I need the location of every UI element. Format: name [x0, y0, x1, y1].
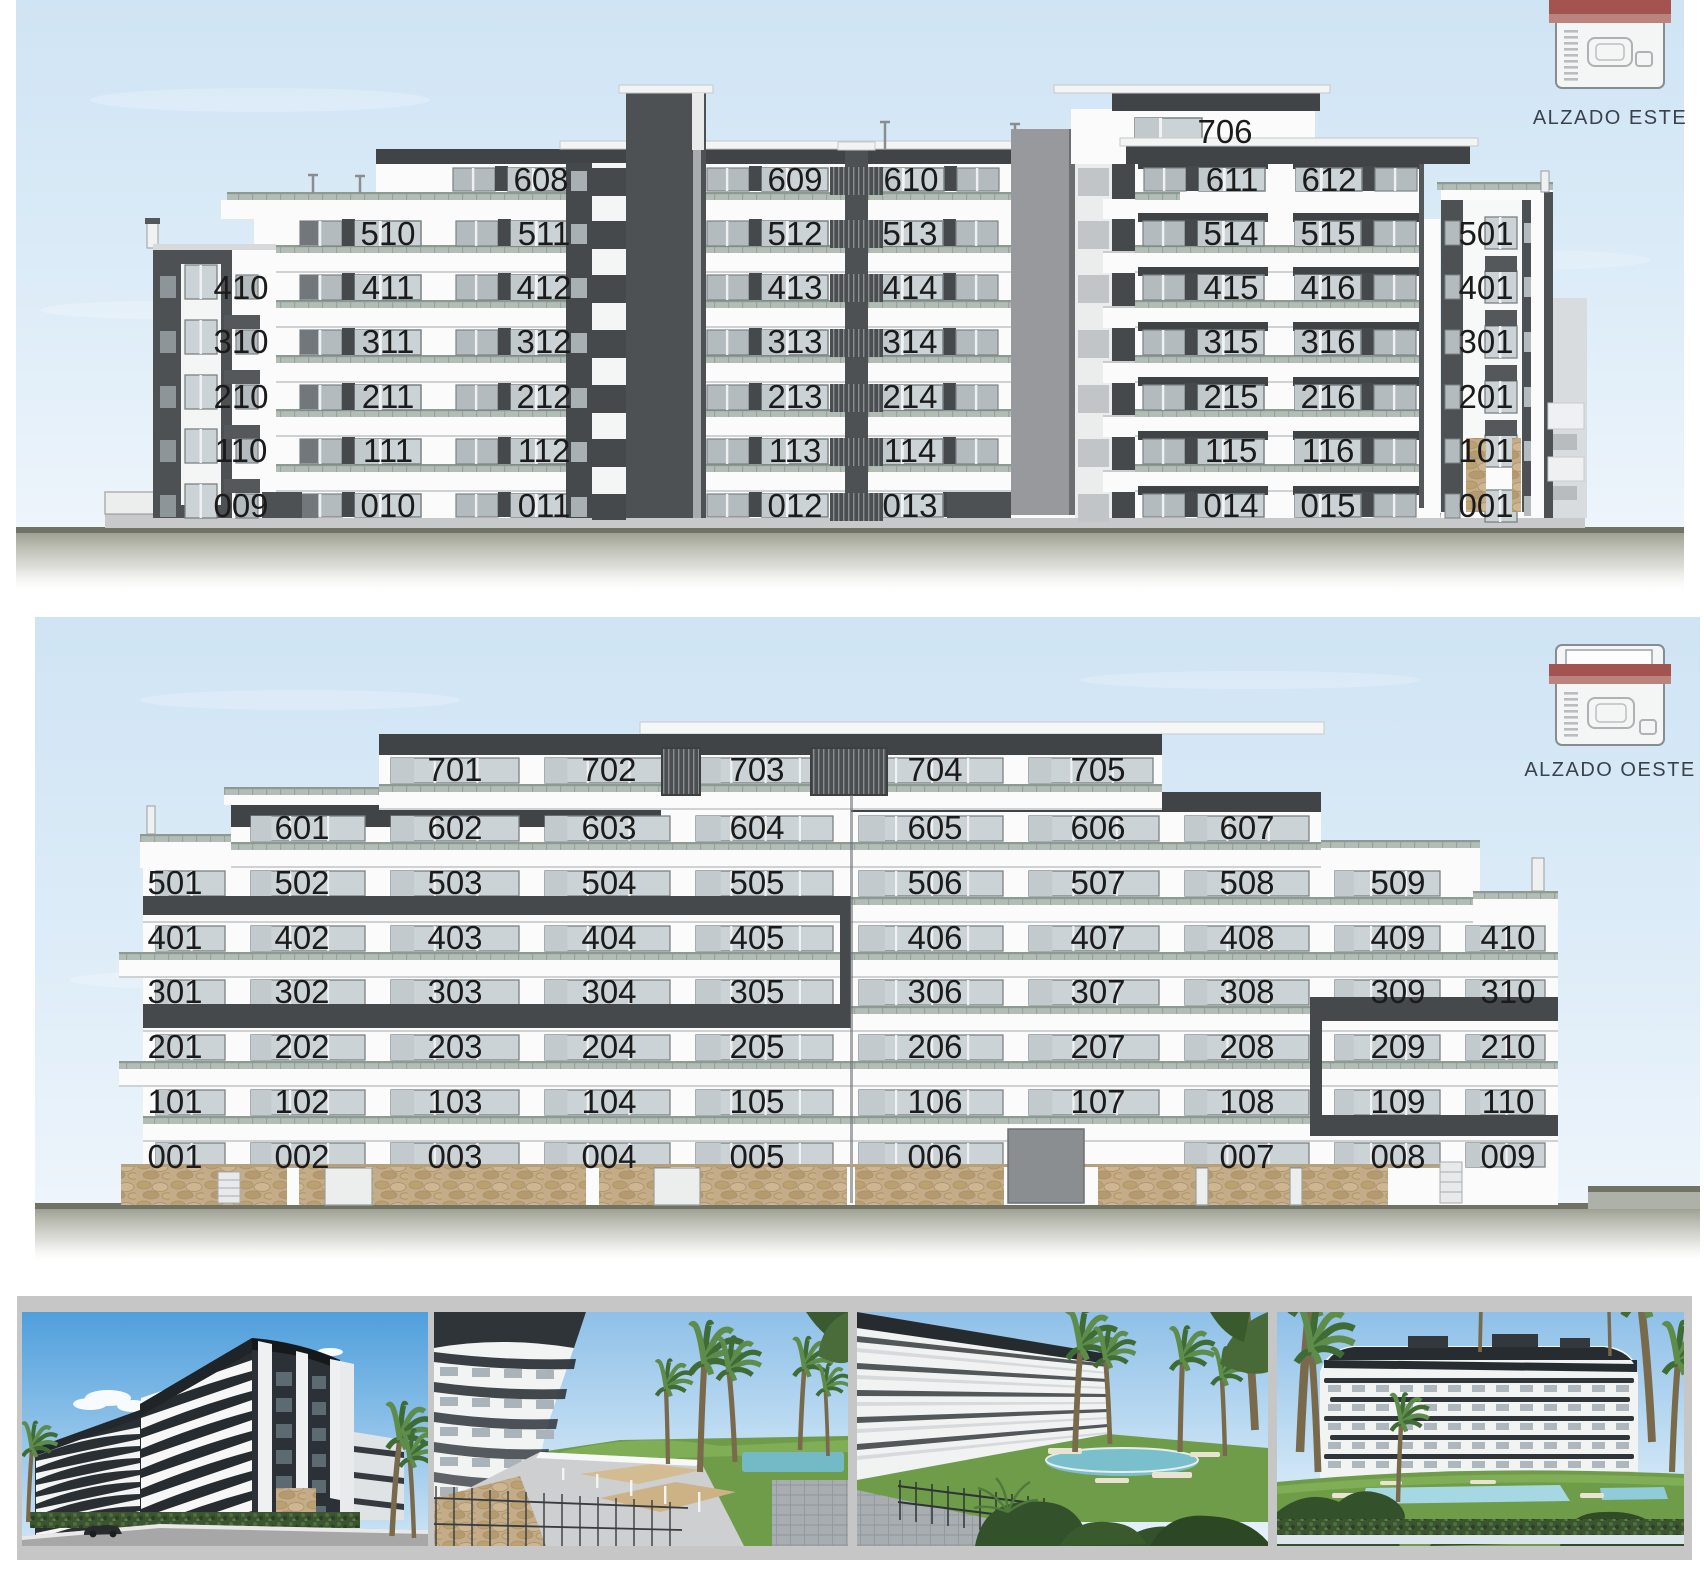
- svg-text:609: 609: [767, 161, 822, 198]
- svg-text:213: 213: [767, 378, 822, 415]
- svg-text:401: 401: [147, 919, 202, 956]
- svg-text:413: 413: [767, 269, 822, 306]
- svg-text:211: 211: [362, 378, 415, 415]
- svg-text:608: 608: [513, 161, 568, 198]
- svg-text:112: 112: [518, 432, 571, 469]
- svg-text:414: 414: [882, 269, 937, 306]
- svg-text:001: 001: [1458, 487, 1513, 524]
- svg-text:215: 215: [1203, 378, 1258, 415]
- svg-text:507: 507: [1070, 864, 1125, 901]
- svg-text:308: 308: [1219, 973, 1274, 1010]
- svg-text:306: 306: [907, 973, 962, 1010]
- svg-text:407: 407: [1070, 919, 1125, 956]
- svg-text:501: 501: [1458, 215, 1513, 252]
- svg-text:214: 214: [882, 378, 937, 415]
- svg-text:602: 602: [427, 809, 482, 846]
- svg-text:206: 206: [907, 1028, 962, 1065]
- svg-text:005: 005: [729, 1138, 784, 1175]
- svg-text:409: 409: [1370, 919, 1425, 956]
- svg-text:104: 104: [581, 1083, 636, 1120]
- svg-text:412: 412: [516, 269, 571, 306]
- svg-text:313: 313: [767, 323, 822, 360]
- svg-text:102: 102: [274, 1083, 329, 1120]
- svg-text:004: 004: [581, 1138, 636, 1175]
- svg-text:210: 210: [1480, 1028, 1535, 1065]
- svg-text:304: 304: [581, 973, 636, 1010]
- svg-text:015: 015: [1300, 487, 1355, 524]
- svg-text:515: 515: [1300, 215, 1355, 252]
- svg-text:610: 610: [883, 161, 938, 198]
- svg-text:302: 302: [274, 973, 329, 1010]
- svg-text:506: 506: [907, 864, 962, 901]
- svg-text:301: 301: [1458, 323, 1513, 360]
- svg-text:606: 606: [1070, 809, 1125, 846]
- svg-text:301: 301: [147, 973, 202, 1010]
- svg-text:210: 210: [213, 378, 268, 415]
- svg-text:311: 311: [362, 323, 415, 360]
- svg-text:303: 303: [427, 973, 482, 1010]
- svg-text:101: 101: [1458, 432, 1513, 469]
- svg-text:309: 309: [1370, 973, 1425, 1010]
- svg-text:314: 314: [882, 323, 937, 360]
- svg-text:316: 316: [1300, 323, 1355, 360]
- svg-text:109: 109: [1370, 1083, 1425, 1120]
- svg-text:514: 514: [1203, 215, 1258, 252]
- svg-text:510: 510: [360, 215, 415, 252]
- svg-text:505: 505: [729, 864, 784, 901]
- svg-text:312: 312: [516, 323, 571, 360]
- svg-text:310: 310: [213, 323, 268, 360]
- svg-text:512: 512: [767, 215, 822, 252]
- svg-text:509: 509: [1370, 864, 1425, 901]
- svg-text:009: 009: [213, 487, 268, 524]
- svg-text:115: 115: [1205, 432, 1258, 469]
- svg-text:408: 408: [1219, 919, 1274, 956]
- svg-text:212: 212: [516, 378, 571, 415]
- svg-text:205: 205: [729, 1028, 784, 1065]
- svg-text:001: 001: [147, 1138, 202, 1175]
- svg-text:216: 216: [1300, 378, 1355, 415]
- svg-text:203: 203: [427, 1028, 482, 1065]
- svg-text:106: 106: [907, 1083, 962, 1120]
- svg-text:502: 502: [274, 864, 329, 901]
- svg-text:002: 002: [274, 1138, 329, 1175]
- svg-text:014: 014: [1203, 487, 1258, 524]
- svg-text:601: 601: [274, 809, 329, 846]
- svg-text:204: 204: [581, 1028, 636, 1065]
- svg-text:607: 607: [1219, 809, 1274, 846]
- svg-text:006: 006: [907, 1138, 962, 1175]
- svg-text:703: 703: [729, 751, 784, 788]
- svg-text:116: 116: [1302, 432, 1355, 469]
- svg-text:404: 404: [581, 919, 636, 956]
- svg-text:003: 003: [427, 1138, 482, 1175]
- svg-text:013: 013: [882, 487, 937, 524]
- svg-text:009: 009: [1480, 1138, 1535, 1175]
- svg-text:611: 611: [1206, 161, 1259, 198]
- svg-text:ALZADO ESTE: ALZADO ESTE: [1533, 107, 1687, 129]
- svg-text:415: 415: [1203, 269, 1258, 306]
- svg-text:603: 603: [581, 809, 636, 846]
- svg-text:108: 108: [1219, 1083, 1274, 1120]
- svg-text:513: 513: [882, 215, 937, 252]
- svg-text:012: 012: [767, 487, 822, 524]
- svg-text:207: 207: [1070, 1028, 1125, 1065]
- svg-text:511: 511: [518, 215, 571, 252]
- svg-text:110: 110: [215, 432, 268, 469]
- svg-text:612: 612: [1301, 161, 1356, 198]
- svg-text:504: 504: [581, 864, 636, 901]
- svg-text:704: 704: [907, 751, 962, 788]
- svg-text:110: 110: [1482, 1083, 1535, 1120]
- svg-text:107: 107: [1070, 1083, 1125, 1120]
- svg-text:111: 111: [363, 432, 413, 469]
- svg-text:401: 401: [1458, 269, 1513, 306]
- svg-text:008: 008: [1370, 1138, 1425, 1175]
- svg-text:315: 315: [1203, 323, 1258, 360]
- svg-text:007: 007: [1219, 1138, 1274, 1175]
- svg-text:416: 416: [1300, 269, 1355, 306]
- svg-text:011: 011: [518, 487, 571, 524]
- svg-text:508: 508: [1219, 864, 1274, 901]
- svg-text:010: 010: [360, 487, 415, 524]
- svg-text:209: 209: [1370, 1028, 1425, 1065]
- svg-text:202: 202: [274, 1028, 329, 1065]
- svg-text:604: 604: [729, 809, 784, 846]
- svg-text:201: 201: [147, 1028, 202, 1065]
- svg-text:410: 410: [213, 269, 268, 306]
- svg-text:501: 501: [147, 864, 202, 901]
- svg-text:503: 503: [427, 864, 482, 901]
- svg-text:310: 310: [1480, 973, 1535, 1010]
- svg-text:403: 403: [427, 919, 482, 956]
- svg-text:701: 701: [427, 751, 482, 788]
- svg-text:208: 208: [1219, 1028, 1274, 1065]
- svg-text:705: 705: [1070, 751, 1125, 788]
- svg-text:113: 113: [769, 432, 822, 469]
- svg-text:101: 101: [147, 1083, 202, 1120]
- svg-text:411: 411: [362, 269, 415, 306]
- svg-text:ALZADO OESTE: ALZADO OESTE: [1524, 759, 1695, 781]
- svg-text:605: 605: [907, 809, 962, 846]
- svg-text:103: 103: [427, 1083, 482, 1120]
- svg-text:305: 305: [729, 973, 784, 1010]
- svg-text:706: 706: [1197, 113, 1252, 150]
- svg-text:307: 307: [1070, 973, 1125, 1010]
- svg-text:105: 105: [729, 1083, 784, 1120]
- svg-text:406: 406: [907, 919, 962, 956]
- svg-text:410: 410: [1480, 919, 1535, 956]
- svg-text:402: 402: [274, 919, 329, 956]
- svg-text:405: 405: [729, 919, 784, 956]
- svg-text:114: 114: [884, 432, 937, 469]
- svg-text:201: 201: [1458, 378, 1513, 415]
- svg-text:702: 702: [581, 751, 636, 788]
